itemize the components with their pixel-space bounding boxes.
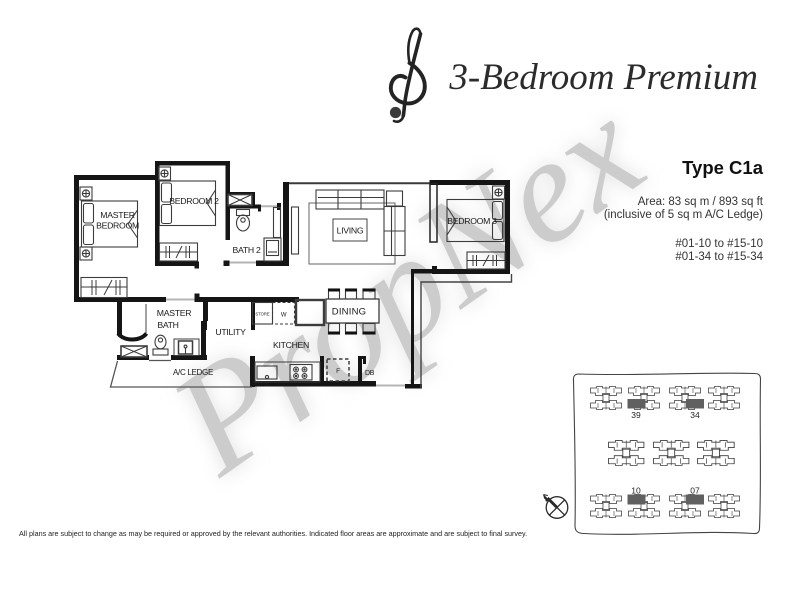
svg-text:UTILITY: UTILITY bbox=[215, 327, 246, 337]
svg-text:STORE: STORE bbox=[255, 312, 270, 317]
svg-text:BEDROOM: BEDROOM bbox=[96, 221, 139, 231]
svg-text:LIVING: LIVING bbox=[337, 226, 364, 236]
svg-text:BATH 2: BATH 2 bbox=[233, 245, 261, 255]
svg-text:W: W bbox=[281, 313, 287, 319]
svg-text:DINING: DINING bbox=[332, 307, 366, 318]
svg-text:3-Bedroom Premium: 3-Bedroom Premium bbox=[448, 57, 758, 98]
svg-text:PropNex: PropNex bbox=[143, 67, 671, 506]
svg-text:A/C LEDGE: A/C LEDGE bbox=[173, 368, 213, 377]
svg-text:BEDROOM 2: BEDROOM 2 bbox=[169, 196, 219, 206]
svg-text:All plans are subject to chang: All plans are subject to change as may b… bbox=[19, 529, 527, 538]
svg-text:#01-10 to #15-10: #01-10 to #15-10 bbox=[675, 238, 763, 250]
svg-text:Type C1a: Type C1a bbox=[682, 157, 764, 178]
svg-text:39: 39 bbox=[631, 410, 641, 420]
svg-text:BEDROOM 3: BEDROOM 3 bbox=[447, 216, 497, 226]
svg-text:10: 10 bbox=[631, 486, 641, 496]
svg-text:MASTER: MASTER bbox=[157, 308, 191, 318]
svg-text:(inclusive of 5 sq m A/C Ledge: (inclusive of 5 sq m A/C Ledge) bbox=[604, 209, 763, 221]
svg-text:MASTER: MASTER bbox=[100, 210, 134, 220]
svg-text:#01-34 to #15-34: #01-34 to #15-34 bbox=[675, 251, 763, 263]
svg-text:KITCHEN: KITCHEN bbox=[273, 340, 309, 350]
svg-text:Area: 83 sq m / 893 sq ft: Area: 83 sq m / 893 sq ft bbox=[638, 196, 764, 208]
svg-text:DB: DB bbox=[365, 370, 375, 377]
svg-text:07: 07 bbox=[690, 486, 700, 496]
svg-text:34: 34 bbox=[690, 410, 700, 420]
svg-text:F: F bbox=[336, 368, 340, 375]
svg-text:BATH: BATH bbox=[157, 320, 178, 330]
